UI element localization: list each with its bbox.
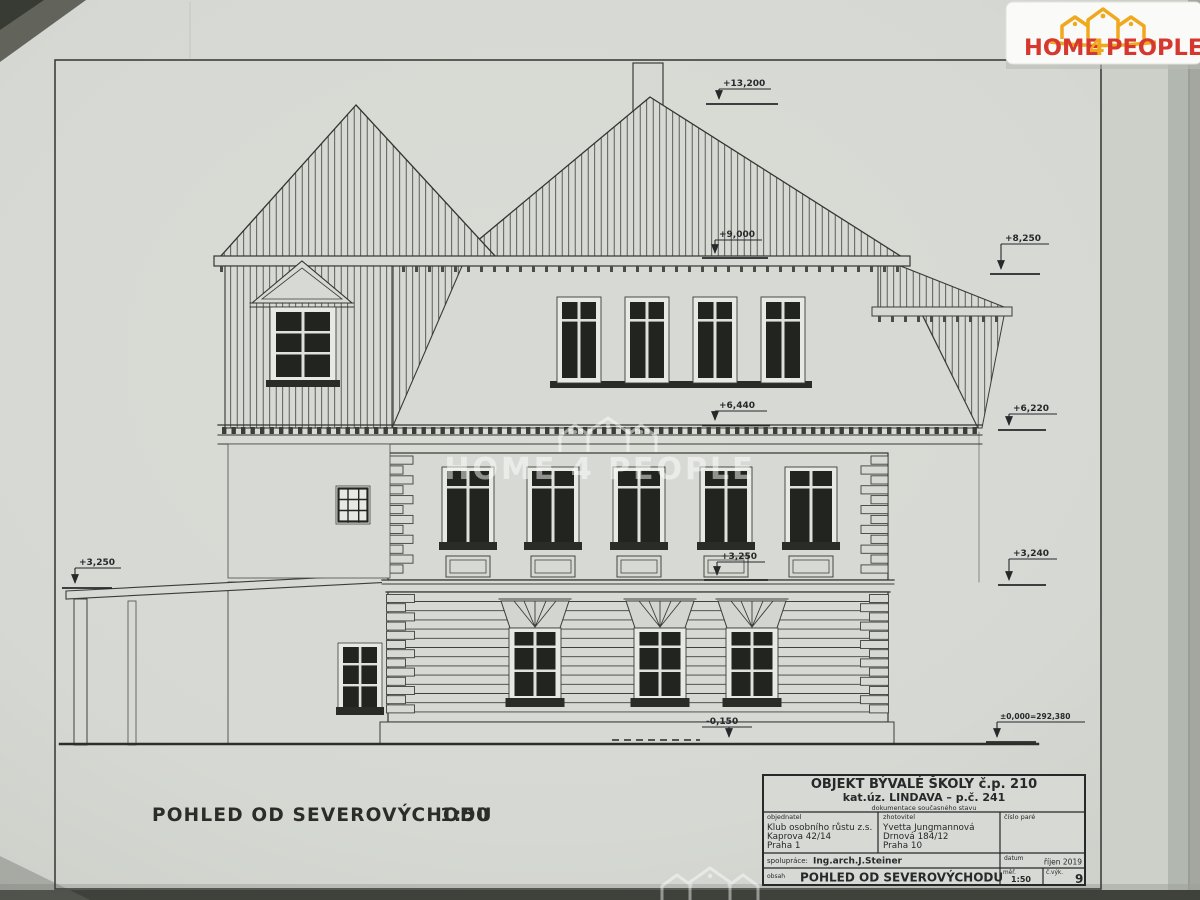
project-subtitle: dokumentace současného stavu: [872, 804, 977, 812]
watermark-text: HOME 4 PEOPLE: [444, 452, 755, 487]
floor-divider-cornice: [382, 580, 894, 592]
project-title: OBJEKT BÝVALÉ ŠKOLY č.p. 210: [811, 776, 1037, 792]
collaboration-value: Ing.arch.J.Steiner: [813, 857, 903, 867]
collaboration-label: spolupráce:: [767, 857, 808, 865]
marker-attic-cornice-label: +6,440: [719, 401, 755, 411]
client-address-2: Praha 1: [767, 841, 801, 851]
scanned-elevation-sheet: +13,200 +9,000 +8,250 +6,440 +6,220 +3,2…: [0, 0, 1200, 900]
porch-post: [74, 599, 87, 745]
marker-base-right-label: ±0,000=292,380: [1000, 712, 1070, 721]
marker-ridge-label: +13,200: [723, 79, 765, 89]
caption: POHLED OD SEVEROVÝCHODU 1:50: [152, 804, 493, 826]
scale-value: 1:50: [1011, 875, 1031, 884]
logo-text-people: PEOPLE: [1106, 35, 1200, 61]
title-block: OBJEKT BÝVALÉ ŠKOLY č.p. 210 kat.úz. LIN…: [763, 775, 1085, 886]
dormer-window-4: [761, 297, 805, 383]
date-label: datum: [1004, 855, 1024, 862]
ground-floor-window-2: [624, 599, 696, 707]
porch-window: [336, 643, 384, 715]
left-tower-wall: [225, 261, 392, 428]
date-value: říjen 2019: [1044, 858, 1082, 867]
client-label: objednatel: [767, 813, 802, 821]
side-small-window: [336, 486, 370, 524]
author-address-2: Praha 10: [883, 841, 923, 851]
caption-scale: 1:50: [440, 805, 490, 826]
sheet-number-label: č.výk.: [1046, 869, 1063, 876]
dormer-window-2: [625, 297, 669, 383]
dormer-window-3: [693, 297, 737, 383]
author-label: zhotovitel: [883, 813, 915, 821]
marker-right-floor-label: +3,240: [1013, 549, 1049, 559]
marker-main-eave-label: +9,000: [719, 230, 755, 240]
project-cadastre: kat.úz. LINDAVA – p.č. 241: [843, 791, 1006, 804]
ground-floor-window-3: [716, 599, 788, 707]
marker-right-eave-label: +8,250: [1005, 234, 1041, 244]
tower-window: [266, 307, 340, 387]
content-value: POHLED OD SEVEROVÝCHODU: [800, 870, 1003, 885]
marker-base-center-label: -0,150: [706, 717, 738, 727]
dormer-window-1: [557, 297, 601, 383]
content-label: obsah: [767, 873, 785, 880]
page-background: [0, 0, 1200, 900]
elevation-drawing-svg: +13,200 +9,000 +8,250 +6,440 +6,220 +3,2…: [0, 0, 1200, 900]
ground-floor-window-1: [499, 599, 571, 707]
logo-wordmark: HOME 4 PEOPLE: [1024, 35, 1200, 61]
porch-post-2: [128, 601, 136, 745]
home4people-logo: HOME 4 PEOPLE: [1006, 2, 1200, 69]
ground-floor: [380, 592, 894, 744]
marker-right-cornice-label: +6,220: [1013, 404, 1049, 414]
sheet-number-value: 9: [1075, 872, 1083, 886]
marker-porch-label: +3,250: [79, 558, 115, 568]
logo-text-4: 4: [1089, 35, 1105, 61]
marker-floor-center-label: +3,250: [721, 552, 757, 562]
copy-number-label: číslo paré: [1004, 813, 1035, 821]
